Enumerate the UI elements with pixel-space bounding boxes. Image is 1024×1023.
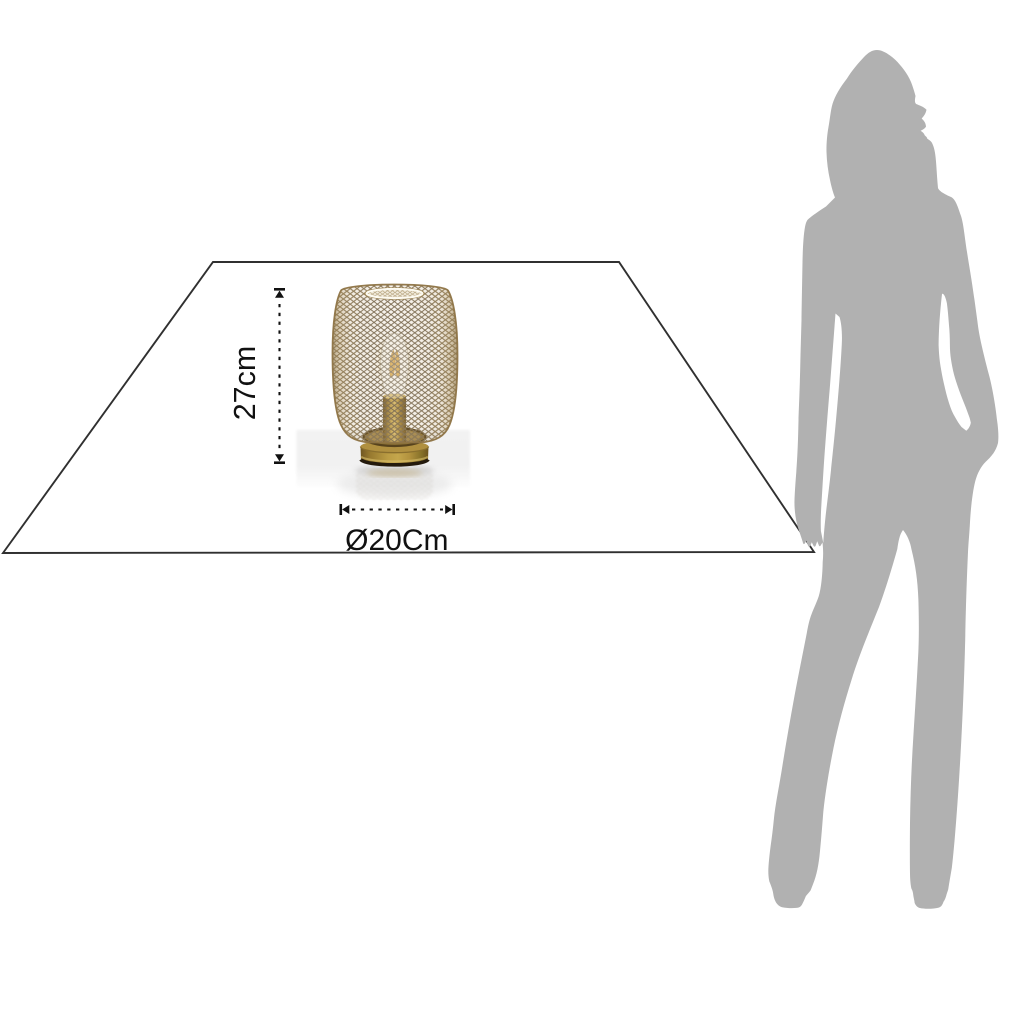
svg-text:27cm: 27cm	[228, 346, 262, 421]
svg-text:Ø20Cm: Ø20Cm	[345, 524, 448, 557]
